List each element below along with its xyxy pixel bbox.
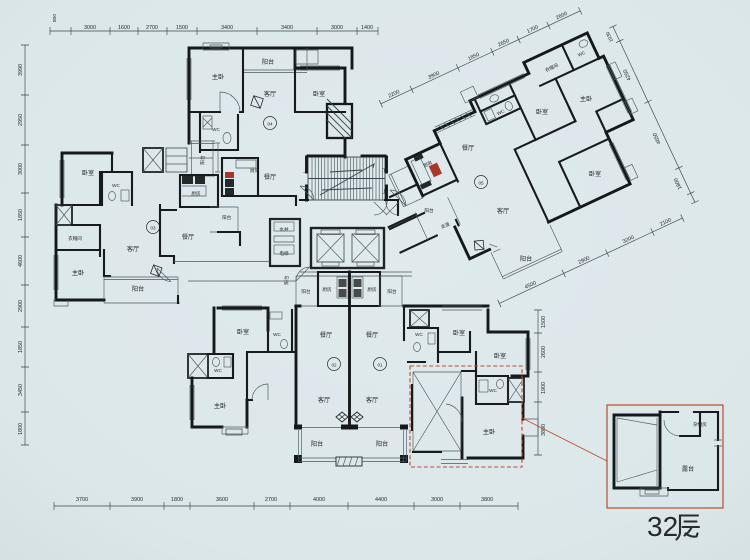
svg-text:厨房: 厨房 — [367, 286, 377, 293]
svg-text:WC: WC — [489, 388, 497, 393]
svg-text:餐厅: 餐厅 — [182, 233, 194, 241]
svg-text:2700: 2700 — [265, 497, 277, 503]
svg-text:2600: 2600 — [541, 346, 547, 358]
svg-text:02: 02 — [331, 362, 337, 367]
svg-text:阳台: 阳台 — [283, 275, 290, 285]
svg-text:阳台: 阳台 — [311, 440, 323, 448]
svg-text:04: 04 — [267, 121, 273, 126]
svg-text:3000: 3000 — [18, 163, 24, 175]
svg-text:1500: 1500 — [176, 25, 188, 31]
svg-text:卧室: 卧室 — [536, 108, 548, 116]
svg-text:卧室: 卧室 — [313, 90, 325, 98]
svg-text:阳台: 阳台 — [199, 155, 206, 165]
svg-text:卧室: 卧室 — [82, 169, 94, 177]
svg-text:3700: 3700 — [76, 497, 88, 503]
svg-text:客厅: 客厅 — [264, 90, 276, 98]
svg-text:卧室: 卧室 — [494, 352, 506, 360]
svg-text:阳台: 阳台 — [222, 214, 232, 221]
svg-text:1900: 1900 — [541, 382, 547, 394]
svg-text:05: 05 — [478, 180, 484, 185]
svg-text:厨房: 厨房 — [191, 190, 201, 197]
svg-text:3450: 3450 — [18, 384, 24, 396]
svg-text:1850: 1850 — [18, 209, 24, 221]
svg-text:客厅: 客厅 — [127, 245, 139, 253]
svg-text:WC: WC — [415, 332, 423, 337]
svg-text:上: 上 — [303, 167, 308, 173]
svg-text:1800: 1800 — [18, 423, 24, 435]
svg-text:厨房: 厨房 — [250, 167, 260, 174]
svg-text:2950: 2950 — [18, 114, 24, 126]
svg-text:3800: 3800 — [481, 497, 493, 503]
svg-text:4400: 4400 — [375, 497, 387, 503]
svg-text:客厅: 客厅 — [318, 396, 330, 404]
svg-text:露台: 露台 — [682, 465, 694, 473]
svg-text:餐厅: 餐厅 — [462, 144, 474, 152]
svg-text:主卧: 主卧 — [212, 73, 224, 81]
svg-text:电梯: 电梯 — [279, 250, 289, 257]
svg-text:1850: 1850 — [18, 341, 24, 353]
svg-text:衣帽间: 衣帽间 — [68, 235, 82, 242]
svg-text:阳台: 阳台 — [262, 58, 274, 66]
svg-text:主卧: 主卧 — [483, 428, 495, 436]
svg-text:2700: 2700 — [146, 25, 158, 31]
svg-text:1400: 1400 — [361, 25, 373, 31]
svg-text:卧室: 卧室 — [237, 328, 249, 336]
svg-text:客厅: 客厅 — [366, 396, 378, 404]
svg-text:WC: WC — [112, 183, 120, 188]
svg-text:上: 上 — [382, 188, 387, 194]
svg-text:1600: 1600 — [118, 25, 130, 31]
svg-text:3400: 3400 — [221, 25, 233, 31]
svg-text:3900: 3900 — [131, 497, 143, 503]
svg-text:餐厅: 餐厅 — [264, 173, 276, 181]
svg-text:WC: WC — [212, 127, 220, 132]
svg-text:杂物房: 杂物房 — [693, 421, 707, 428]
svg-text:3600: 3600 — [216, 497, 228, 503]
svg-text:3000: 3000 — [331, 25, 343, 31]
svg-text:主卧: 主卧 — [214, 402, 226, 410]
svg-text:阳台: 阳台 — [132, 285, 144, 293]
svg-text:水井: 水井 — [279, 226, 289, 233]
svg-text:阳台: 阳台 — [376, 440, 388, 448]
svg-text:3000: 3000 — [84, 25, 96, 31]
svg-text:2900: 2900 — [18, 300, 24, 312]
svg-text:厨房: 厨房 — [322, 286, 332, 293]
svg-text:800: 800 — [52, 14, 58, 22]
svg-text:主卧: 主卧 — [72, 269, 84, 277]
svg-text:阳台: 阳台 — [520, 255, 532, 263]
svg-text:01: 01 — [377, 362, 383, 367]
svg-text:3990: 3990 — [18, 64, 24, 76]
svg-text:客厅: 客厅 — [497, 207, 509, 215]
svg-text:阳台: 阳台 — [424, 207, 434, 214]
svg-text:阳台: 阳台 — [387, 288, 397, 295]
svg-text:4000: 4000 — [313, 497, 325, 503]
svg-text:1800: 1800 — [171, 497, 183, 503]
svg-text:主卧: 主卧 — [580, 95, 592, 103]
svg-text:1500: 1500 — [541, 316, 547, 328]
svg-text:卧室: 卧室 — [589, 170, 601, 178]
svg-text:卧室: 卧室 — [453, 329, 465, 337]
svg-text:4600: 4600 — [18, 255, 24, 267]
svg-text:03: 03 — [150, 225, 156, 230]
svg-text:WC: WC — [273, 332, 281, 337]
svg-text:WC: WC — [214, 368, 222, 373]
svg-text:3400: 3400 — [281, 25, 293, 31]
svg-text:餐厅: 餐厅 — [320, 331, 332, 339]
svg-text:32: 32 — [647, 511, 678, 542]
svg-text:餐厅: 餐厅 — [366, 331, 378, 339]
svg-text:阳台: 阳台 — [301, 288, 311, 295]
svg-text:3000: 3000 — [431, 497, 443, 503]
